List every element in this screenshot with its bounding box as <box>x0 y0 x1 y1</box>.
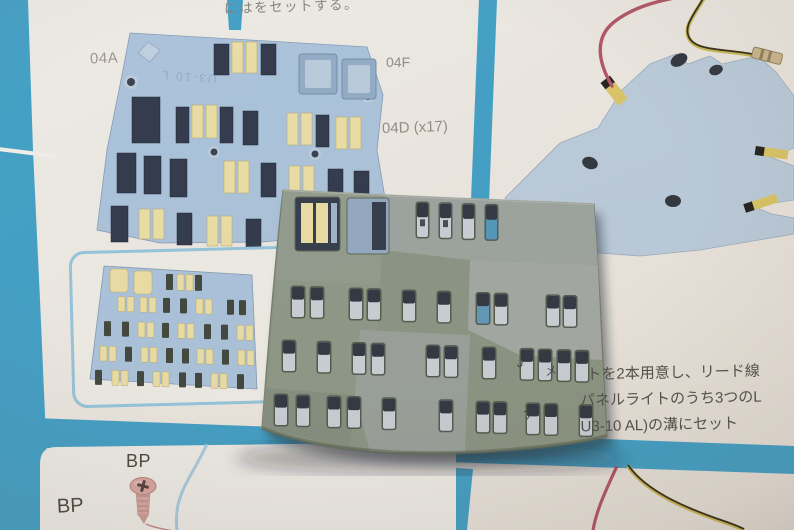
photo-model-kit-instructions-with-part: にはをセットする。 04A 04F 04D (x17) U3-10 L トを2本… <box>0 0 794 530</box>
step-line-3: U3-10 AL)の溝にセット <box>580 410 794 441</box>
part-surface-mark: J <box>516 355 524 371</box>
part-label-04f: 04F <box>386 54 410 70</box>
part-surface-mark: メ <box>544 361 558 379</box>
instruction-sheet-artwork <box>0 0 794 530</box>
step-line-2: パネルライトのうち3つのL <box>580 384 794 415</box>
physical-gray-part <box>262 190 607 453</box>
step-instruction-text: トを2本用意し、リード線 パネルライトのうち3つのL U3-10 AL)の溝にセ… <box>579 358 794 441</box>
part-label-04a: 04A <box>90 50 119 68</box>
part-label-04d: 04D (x17) <box>382 118 448 137</box>
screw-label-bp: BP <box>126 451 151 472</box>
inset-panel-diagram <box>90 266 257 389</box>
screw-label-bp-2: BP <box>56 494 84 518</box>
